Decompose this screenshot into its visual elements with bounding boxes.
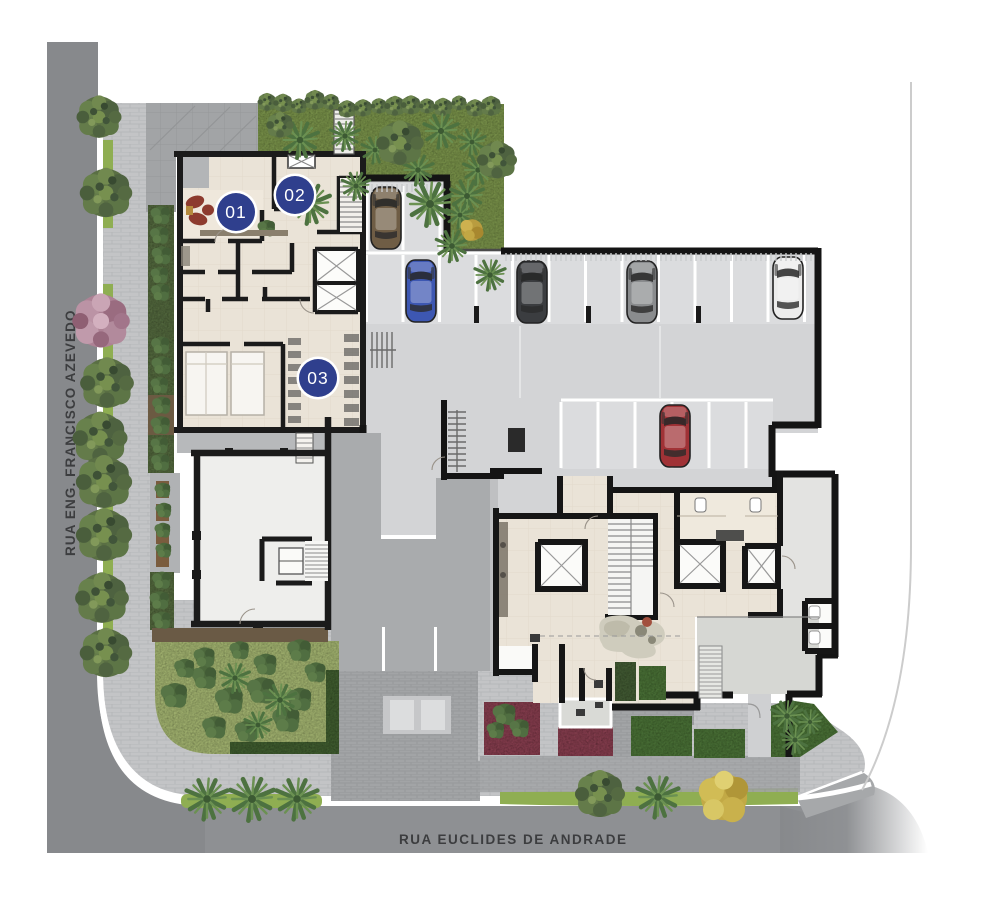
svg-text:RUA EUCLIDES DE ANDRADE: RUA EUCLIDES DE ANDRADE	[399, 832, 628, 847]
svg-text:03: 03	[307, 368, 328, 388]
svg-text:02: 02	[284, 185, 305, 205]
svg-text:01: 01	[225, 202, 246, 222]
